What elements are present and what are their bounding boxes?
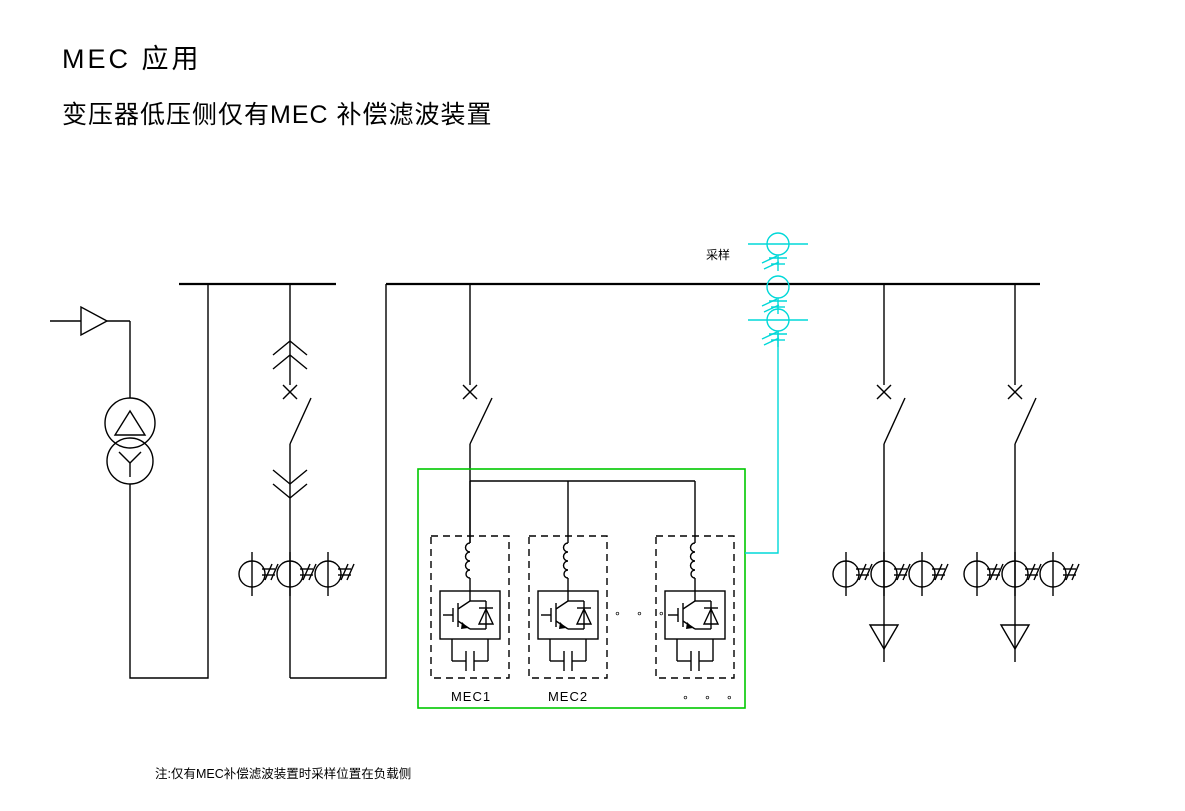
black-linework bbox=[50, 284, 1079, 678]
sampling-ct-icon bbox=[762, 276, 789, 314]
circuit-breaker-icon bbox=[463, 385, 492, 444]
sampling-signal-wire bbox=[745, 331, 778, 553]
sampling-label: 采样 bbox=[706, 247, 730, 262]
page-subtitle: 变压器低压侧仅有MEC 补偿滤波装置 bbox=[62, 101, 493, 129]
mec-module-2 bbox=[529, 481, 607, 678]
tie-feeder bbox=[239, 284, 386, 678]
current-transformer-icon bbox=[315, 552, 354, 596]
page-title: MEC 应用 bbox=[62, 44, 202, 74]
mec-feeder bbox=[463, 284, 695, 543]
circuit-breaker-icon bbox=[283, 385, 311, 444]
sampling-circuit bbox=[745, 233, 808, 553]
load-feeder-2 bbox=[964, 284, 1079, 662]
module-ellipsis: ∘ ∘ ∘ bbox=[614, 608, 671, 620]
mec-module-2-label: MEC2 bbox=[548, 689, 588, 704]
single-line-diagram: MEC 应用 变压器低压侧仅有MEC 补偿滤波装置 采样 MEC1 MEC2 ∘… bbox=[0, 0, 1185, 811]
footnote: 注:仅有MEC补偿滤波装置时采样位置在负载侧 bbox=[155, 766, 411, 781]
mec-module-1 bbox=[431, 481, 509, 678]
current-transformer-icon bbox=[239, 552, 278, 596]
current-transformer-icon bbox=[277, 552, 316, 596]
sampling-ct-icon bbox=[748, 233, 808, 271]
mec-module-1-label: MEC1 bbox=[451, 689, 491, 704]
delta-winding-icon bbox=[115, 411, 145, 435]
mec-module-3 bbox=[656, 481, 734, 678]
load-feeder-1 bbox=[833, 284, 948, 662]
incoming-supply-arrow-icon bbox=[50, 307, 130, 335]
wye-winding-icon bbox=[119, 452, 141, 477]
schematic-page: MEC 应用 变压器低压侧仅有MEC 补偿滤波装置 采样 MEC1 MEC2 ∘… bbox=[0, 0, 1185, 811]
module-ellipsis-bottom: ∘ ∘ ∘ bbox=[682, 692, 739, 704]
transformer-icon bbox=[105, 398, 155, 484]
mec-panel-boundary bbox=[418, 469, 745, 708]
